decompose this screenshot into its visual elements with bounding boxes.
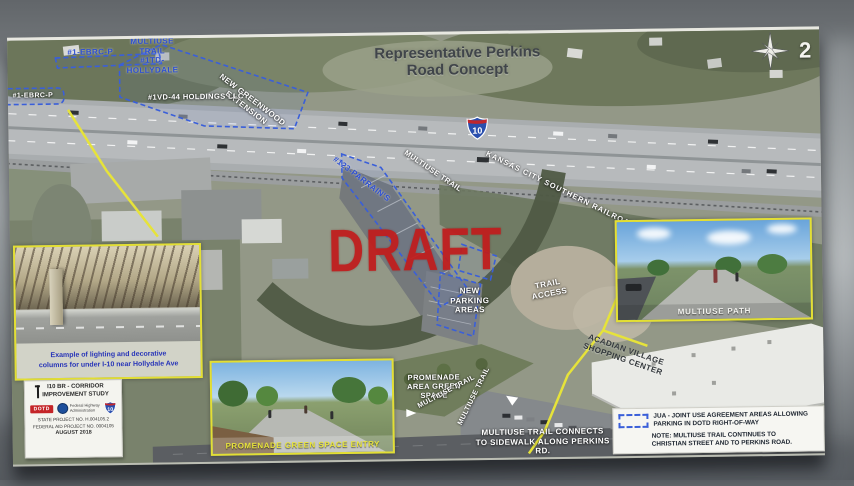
inset-caption-strip: Example of lighting and decorative colum…	[16, 341, 200, 379]
dotd-logo: DOTD	[31, 405, 53, 413]
multiuse-path-caption: MULTIUSE PATH	[678, 306, 752, 316]
page-title: Representative Perkins Road Concept	[352, 43, 562, 80]
tree	[256, 386, 278, 406]
tree	[332, 377, 366, 403]
tree	[218, 380, 248, 406]
broadcast-frame: { "page_number": "2", "title": "Represen…	[0, 0, 854, 480]
page-number: 2	[799, 37, 812, 63]
tree	[647, 259, 669, 275]
aerial-plan-photo: Representative Perkins Road Concept 2 DR…	[7, 26, 825, 466]
inset-caption-strip: PROMENADE GREEN SPACE ENTRY	[213, 435, 393, 454]
cloud	[767, 224, 797, 234]
label-parcel-hollydale: MULTIUSE TRAIL #1TD- HOLLYDALE	[117, 36, 188, 75]
label-trail-connects: MULTIUSE TRAIL CONNECTS TO SIDEWALK ALON…	[475, 426, 611, 457]
compass-rose-icon	[751, 32, 790, 71]
fhwa-seal-icon	[57, 403, 68, 414]
underpass-photo	[15, 245, 200, 344]
lamp-post-icon	[37, 385, 39, 398]
pedestrian	[735, 273, 738, 282]
fhwa-label: Federal Highway Administration	[70, 404, 100, 413]
shield-number-small: 10	[107, 407, 113, 413]
car	[626, 284, 642, 291]
tree	[368, 386, 388, 404]
blur-edge-right	[822, 40, 854, 440]
legend-jua-text: JUA - JOINT USE AGREEMENT AREAS ALLOWING…	[653, 411, 808, 430]
label-new-parking-areas: NEW PARKING AREAS	[435, 286, 505, 316]
inset-caption-strip: MULTIUSE PATH	[618, 302, 811, 320]
pedestrian	[713, 269, 717, 283]
draft-watermark: DRAFT	[328, 214, 503, 286]
person	[304, 406, 307, 414]
road-markings	[16, 325, 200, 330]
legend-note-text: NOTE: MULTIUSE TRAIL CONTINUES TO CHRIST…	[652, 430, 819, 449]
study-title: I10 BR - CORRIDOR IMPROVEMENT STUDY	[42, 383, 109, 399]
inset-promenade-entry: PROMENADE GREEN SPACE ENTRY	[210, 358, 395, 456]
tree	[757, 254, 787, 274]
interstate-10-shield-small-icon: 10	[104, 401, 116, 414]
label-parcel-holdings: #1VD-44 HOLDINGS LLC	[141, 91, 251, 102]
person	[268, 410, 271, 418]
project-date: AUGUST 2018	[33, 430, 114, 439]
project-info-box: I10 BR - CORRIDOR IMPROVEMENT STUDY DOTD…	[24, 379, 123, 458]
inset-lighting-example: Example of lighting and decorative colum…	[13, 243, 203, 381]
interstate-10-shield-icon: 10	[466, 116, 488, 140]
shield-number: 10	[472, 126, 482, 136]
overpass-girders	[15, 245, 200, 310]
jua-dashed-symbol	[618, 414, 648, 428]
promenade-caption: PROMENADE GREEN SPACE ENTRY	[225, 439, 380, 450]
label-parcel-ebrc-left: #1-EBRC-P	[7, 92, 62, 101]
person	[330, 411, 333, 419]
fhwa-logo: Federal Highway Administration	[57, 402, 100, 414]
cloud	[707, 230, 751, 245]
legend-box: JUA - JOINT USE AGREEMENT AREAS ALLOWING…	[612, 405, 825, 454]
inset-multiuse-path: MULTIUSE PATH	[615, 217, 813, 322]
cloud	[637, 227, 671, 239]
bridge-column	[49, 269, 63, 325]
lighting-caption: Example of lighting and decorative colum…	[39, 350, 179, 370]
